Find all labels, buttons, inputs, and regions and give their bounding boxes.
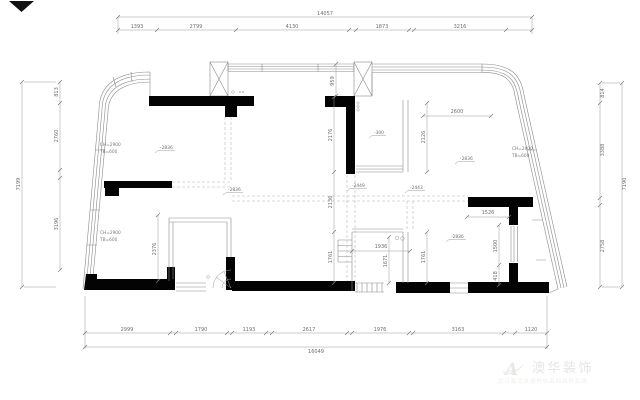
dim-top-seg4: 1873 xyxy=(376,24,389,30)
dim-bottom-seg3: 1193 xyxy=(243,327,256,333)
dim-top-overall: 14057 xyxy=(317,11,333,17)
dim-top-seg5: 3216 xyxy=(454,24,467,30)
level-mark: -2449 xyxy=(352,183,365,189)
switch-symbol xyxy=(357,102,359,104)
walls xyxy=(84,96,549,293)
dim-top-seg2: 2799 xyxy=(190,24,203,30)
dim-bottom-seg2: 1790 xyxy=(195,327,208,333)
dim-left-seg2: 2760 xyxy=(54,130,60,143)
dim-bottom-seg5: 1976 xyxy=(374,327,387,333)
dim-right-overall: 7190 xyxy=(622,178,628,191)
dim-left-overall: 7199 xyxy=(16,178,22,191)
interior-partitions xyxy=(169,100,518,293)
dim-1761-right: 1761 xyxy=(421,251,427,264)
dim-left-seg1: 813 xyxy=(54,87,60,97)
dim-2136: 2136 xyxy=(328,196,334,209)
dim-bottom-seg6: 3163 xyxy=(452,327,465,333)
switch-symbol xyxy=(357,109,359,111)
switch-symbol xyxy=(357,105,359,107)
level-mark: -2443 xyxy=(410,185,423,191)
note-tb: TB=600 xyxy=(99,237,118,243)
drain-symbol xyxy=(207,276,210,279)
symbol-dot xyxy=(242,91,243,92)
dim-1526: 1526 xyxy=(482,210,495,216)
level-mark: -300 xyxy=(374,130,384,136)
note-ch: CH=2900 xyxy=(512,146,533,152)
floor-plan-page: 14057 1393 2799 4130 1873 3216 2999 1790… xyxy=(0,0,640,400)
dim-2600: 2600 xyxy=(451,109,464,115)
dim-right-seg2: 3388 xyxy=(600,144,606,157)
dim-bottom-seg1: 2999 xyxy=(121,327,134,333)
dim-right-seg3: 2758 xyxy=(600,240,606,253)
note-ch: CH=2900 xyxy=(100,142,121,148)
note-ch: CH=2900 xyxy=(100,230,121,236)
bay-window-right xyxy=(372,64,567,293)
dim-right-seg1: 814 xyxy=(600,88,606,98)
dimension-right: 814 3388 2758 7190 xyxy=(598,81,628,289)
level-mark: -2836 xyxy=(451,234,464,240)
watermark-logo-icon: A xyxy=(503,360,518,380)
dim-418: 418 xyxy=(493,271,499,281)
dim-bottom-seg7: 1120 xyxy=(525,327,538,333)
dim-2376: 2376 xyxy=(152,243,158,256)
watermark-tagline: 武汉最受欢迎的中高档装饰品牌 xyxy=(498,377,588,385)
dimension-top: 14057 1393 2799 4130 1873 3216 xyxy=(116,11,534,34)
note-tb: TB=600 xyxy=(99,149,118,155)
level-mark: -2836 xyxy=(460,156,473,162)
symbol-dot xyxy=(239,91,240,92)
dimension-left: 813 2760 3196 7199 xyxy=(16,80,62,289)
interior-dimensions: 2176 2136 1761 2126 1761 1671 959 2376 1… xyxy=(152,62,511,287)
watermark-brand: 澳华装饰 xyxy=(532,360,594,376)
dim-2176: 2176 xyxy=(328,129,334,142)
dimension-bottom: 2999 1790 1193 2617 1976 3163 1120 16049 xyxy=(83,296,549,355)
floor-plan-canvas: 14057 1393 2799 4130 1873 3216 2999 1790… xyxy=(0,0,640,400)
dim-1500: 1500 xyxy=(493,240,499,253)
watermark: A 澳华装饰 武汉最受欢迎的中高档装饰品牌 xyxy=(498,360,594,385)
dim-1936: 1936 xyxy=(375,244,388,250)
hob-burner-symbol xyxy=(401,237,405,241)
level-mark: -2836 xyxy=(160,145,173,151)
dim-959: 959 xyxy=(330,76,336,86)
dim-top-seg3: 4130 xyxy=(286,24,299,30)
hob-burner-symbol xyxy=(395,236,399,240)
dim-top-seg1: 1393 xyxy=(131,24,144,30)
dim-1671: 1671 xyxy=(383,255,389,268)
note-tb: TB=600 xyxy=(511,153,530,159)
bay-window-left xyxy=(83,72,150,289)
corner-arrow-marker xyxy=(9,1,34,12)
door-symbol-dot xyxy=(232,91,235,94)
dim-bottom-seg4: 2617 xyxy=(303,327,316,333)
dim-bottom-overall: 16049 xyxy=(308,349,324,355)
dim-left-seg3: 3196 xyxy=(54,218,60,231)
dim-1761-left: 1761 xyxy=(328,251,334,264)
level-mark: -2836 xyxy=(228,187,241,193)
dim-2126: 2126 xyxy=(421,131,427,144)
